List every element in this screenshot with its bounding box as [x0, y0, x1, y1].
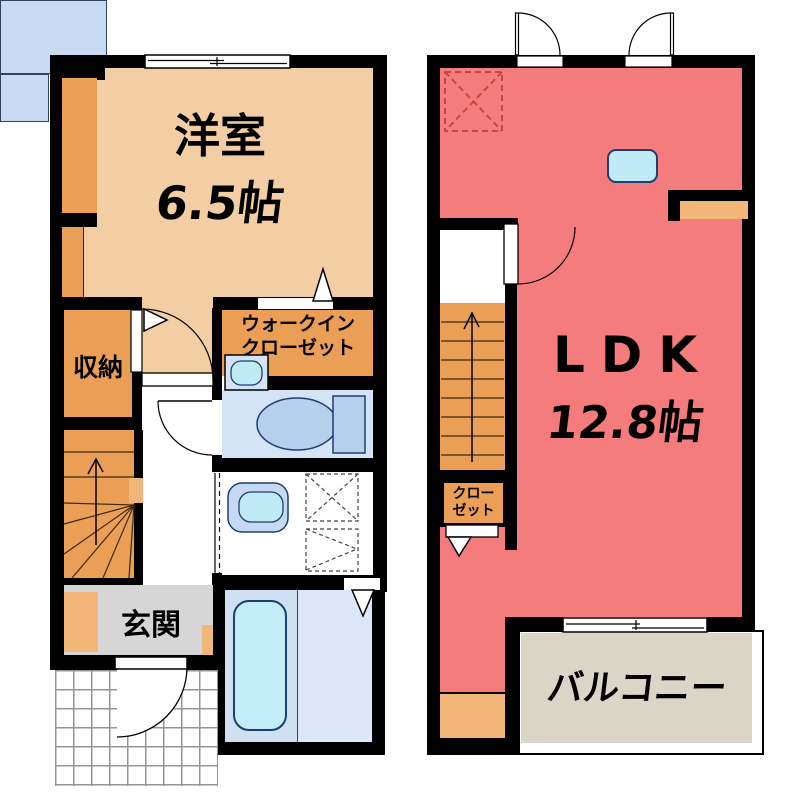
wall-closet-strip: [62, 78, 97, 213]
room-name: LDK: [537, 324, 713, 387]
bathtub-icon: [233, 600, 287, 731]
utility-space-icon: [306, 529, 358, 571]
porch-tiles: [55, 670, 218, 786]
toilet-room-floor: [222, 390, 373, 458]
wall-segment: [50, 417, 142, 430]
storage-counter-2f: [440, 692, 505, 738]
kitchen-cabinet: [680, 201, 748, 219]
wall-segment: [427, 55, 755, 68]
wall-segment: [222, 458, 373, 472]
wall-segment: [212, 575, 385, 590]
stair-landing: [440, 230, 505, 303]
wall-segment: [373, 55, 387, 592]
walk-in-closet-label: ウォークイン クローゼット: [228, 311, 368, 363]
wall-segment: [50, 297, 142, 310]
wall-segment: [505, 617, 518, 755]
wall-segment: [668, 190, 748, 201]
wall-segment: [212, 742, 385, 755]
room-name: 洋室: [174, 108, 266, 166]
washing-machine-pan-icon: [306, 474, 358, 521]
room-size: 12.8帖: [544, 395, 707, 451]
wall-segment: [268, 376, 373, 390]
closet-2f: クロー ゼット: [440, 479, 507, 527]
room-size: 6.5帖: [153, 175, 288, 233]
stairs-2f: [440, 303, 505, 470]
wall-segment: [50, 655, 222, 670]
wall-segment: [62, 213, 97, 227]
kitchen-counter-side: [0, 74, 49, 122]
wall-segment: [440, 218, 518, 230]
wall-segment: [668, 190, 680, 221]
wall-segment: [212, 455, 222, 472]
storage-label: 収納: [64, 352, 132, 384]
wall-segment: [427, 55, 440, 755]
wall-segment: [213, 297, 373, 310]
bathroom-dry-area: [298, 590, 372, 742]
kitchen-sink-icon: [607, 149, 658, 183]
wall-segment: [427, 738, 518, 755]
western-room-floor-extension: [142, 297, 213, 376]
wall-segment: [62, 70, 97, 78]
wall-segment: [372, 590, 385, 755]
wall-segment: [212, 308, 222, 400]
wall-segment: [134, 430, 143, 578]
balcony-label: バルコニー: [525, 666, 748, 710]
entrance-label: 玄関: [96, 607, 206, 645]
floor-plan-canvas: 洋室 6.5帖 収納 ウォークイン クローゼット 玄関: [0, 0, 800, 800]
stairs-1f: [64, 430, 134, 578]
ldk-label: LDK 12.8帖: [510, 320, 740, 455]
ldk-floor-lower: [440, 617, 505, 692]
washbasin-icon: [228, 483, 288, 532]
wall-segment: [132, 310, 142, 430]
toilet-door-icon: [158, 400, 222, 455]
washroom-sliding-door-icon: [212, 472, 222, 573]
wall-segment: [742, 55, 755, 632]
entrance-cabinet: [64, 592, 98, 652]
wall-closet-strip: [62, 227, 84, 297]
western-room-label: 洋室 6.5帖: [105, 105, 335, 235]
stair-newel: [129, 478, 143, 503]
